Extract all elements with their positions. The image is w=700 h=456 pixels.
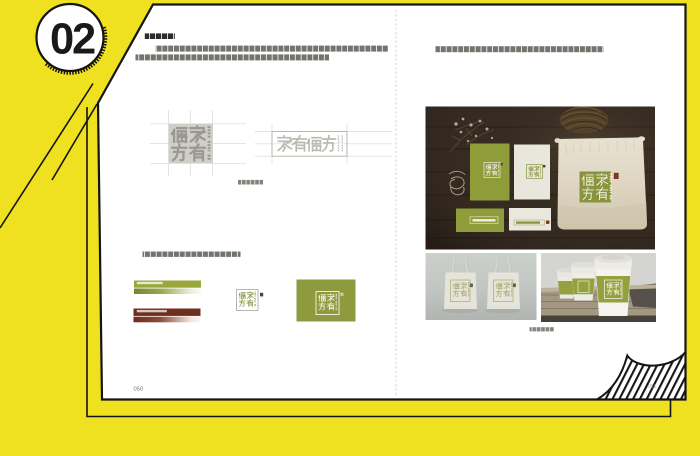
svg-text:050: 050 [134,386,144,392]
svg-text:02: 02 [50,16,95,64]
svg-text:051: 051 [648,384,657,390]
